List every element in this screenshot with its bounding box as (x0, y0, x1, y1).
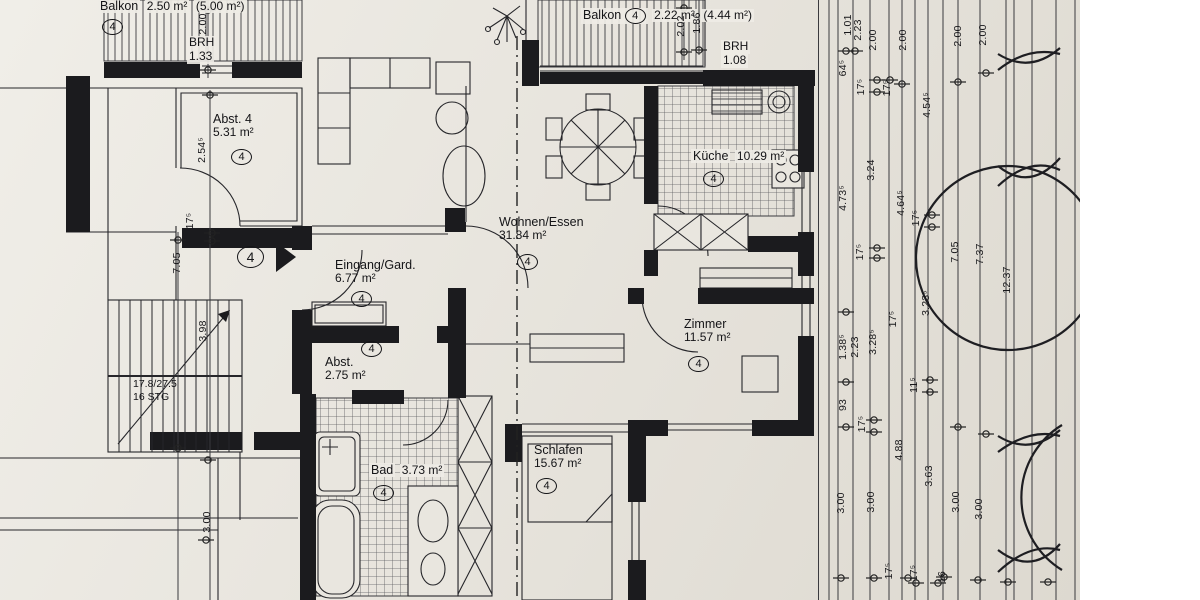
balcony-left-hatch (104, 0, 302, 61)
floorplan-drawing (0, 0, 1080, 600)
stairs-direction-arrow (218, 310, 230, 322)
balcony-top-hatch (538, 0, 705, 67)
construction-arcs (916, 48, 1080, 572)
floorplan-page: { "colors": { "paper": "#e8e5de", "ink":… (0, 0, 1200, 600)
